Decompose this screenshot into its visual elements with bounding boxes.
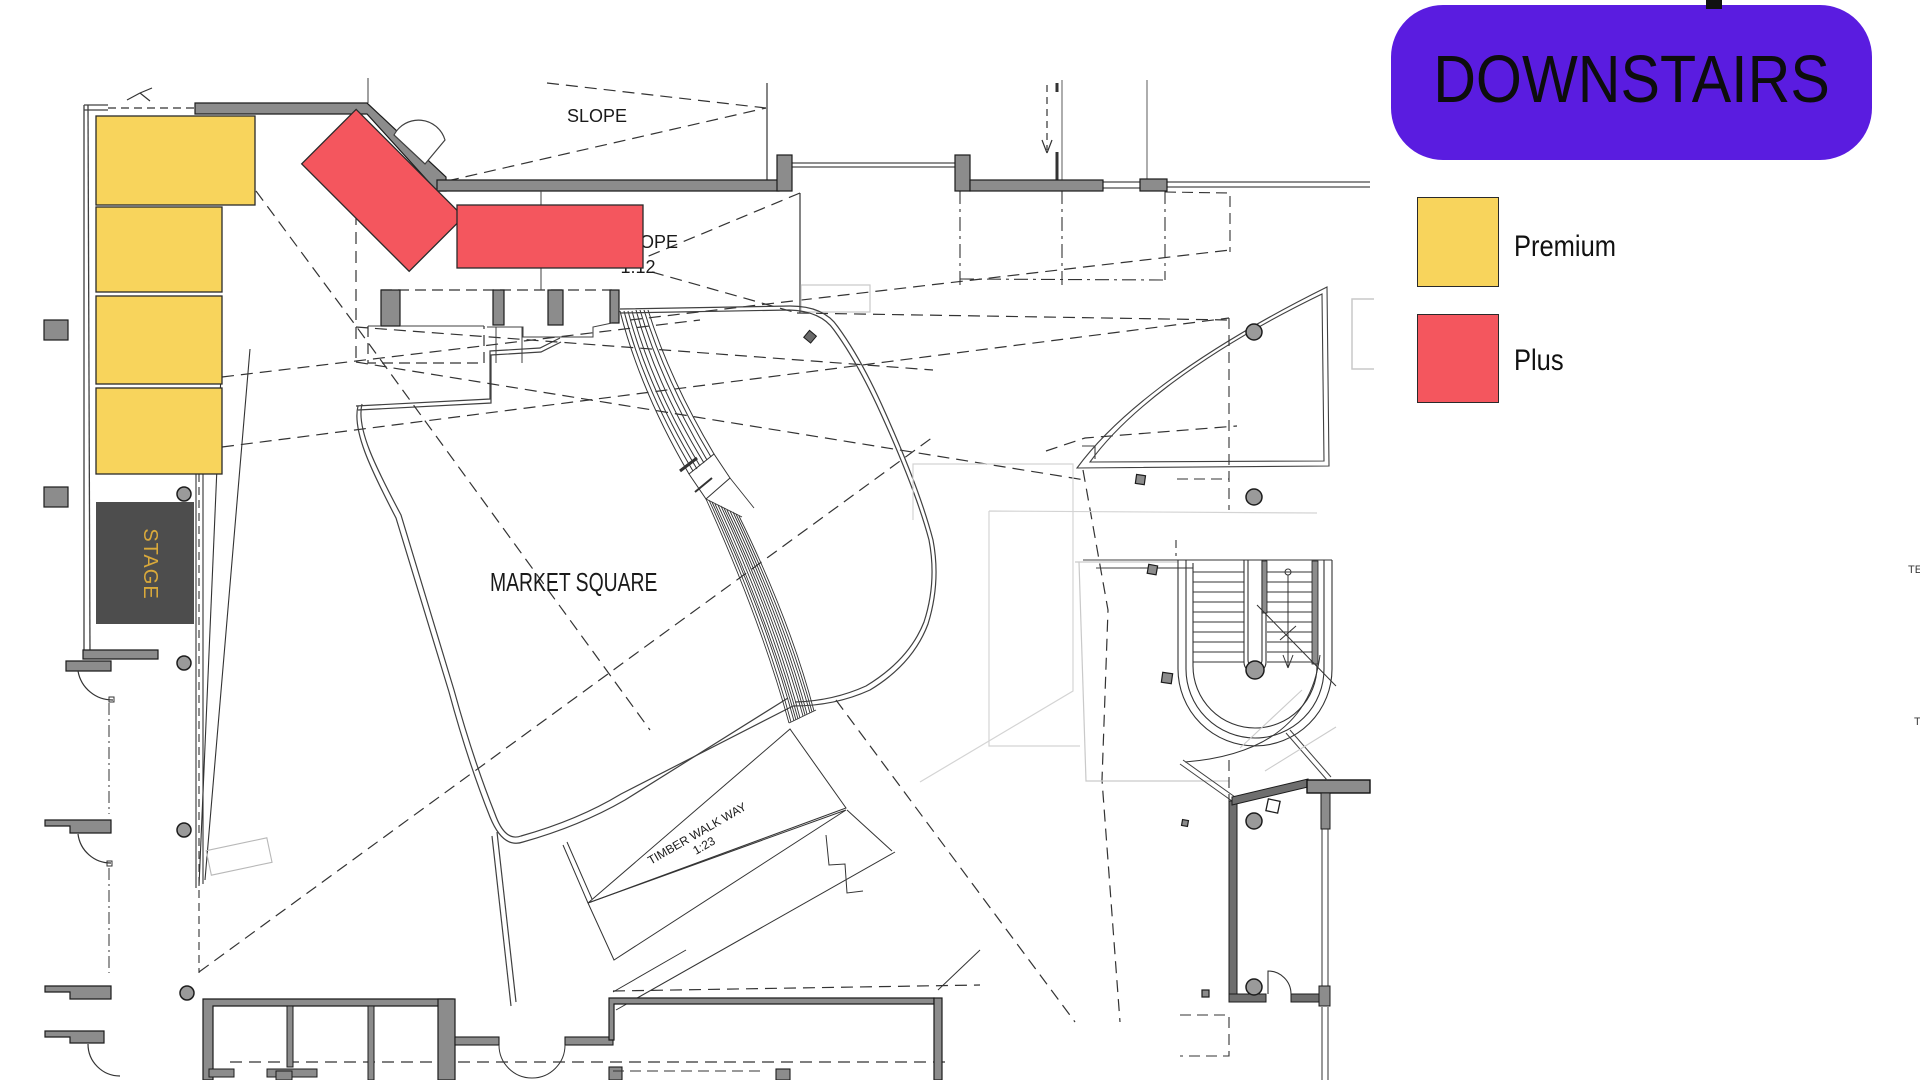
svg-text:MARKET SQUARE: MARKET SQUARE (490, 567, 657, 596)
svg-text:TE: TE (1908, 564, 1920, 576)
svg-text:SLOPE: SLOPE (567, 106, 627, 126)
svg-text:STAGE: STAGE (139, 528, 161, 599)
svg-text:T: T (1914, 716, 1920, 728)
